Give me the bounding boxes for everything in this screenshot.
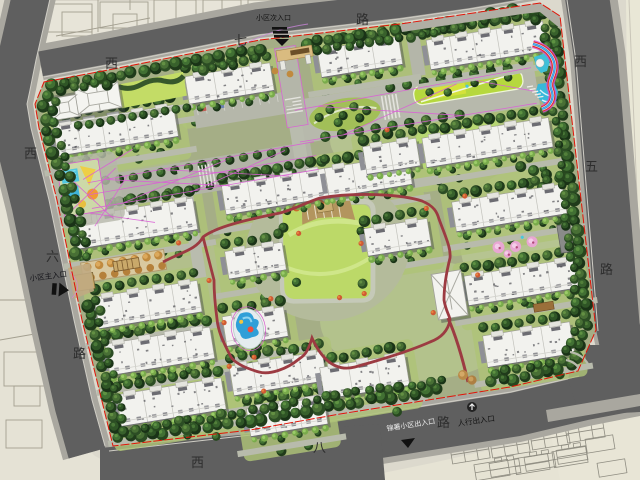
svg-text:八: 八	[313, 440, 326, 455]
svg-text:路: 路	[600, 262, 613, 277]
svg-text:五: 五	[585, 159, 598, 174]
svg-text:路: 路	[437, 415, 450, 430]
svg-text:西: 西	[105, 56, 118, 71]
svg-text:路: 路	[356, 12, 369, 27]
svg-text:西: 西	[574, 54, 587, 69]
svg-text:六: 六	[46, 249, 59, 264]
svg-text:七: 七	[234, 33, 247, 48]
svg-text:小区次入口: 小区次入口	[256, 13, 291, 22]
svg-text:西: 西	[24, 146, 37, 161]
svg-text:路: 路	[73, 346, 86, 361]
svg-text:西: 西	[191, 455, 204, 470]
